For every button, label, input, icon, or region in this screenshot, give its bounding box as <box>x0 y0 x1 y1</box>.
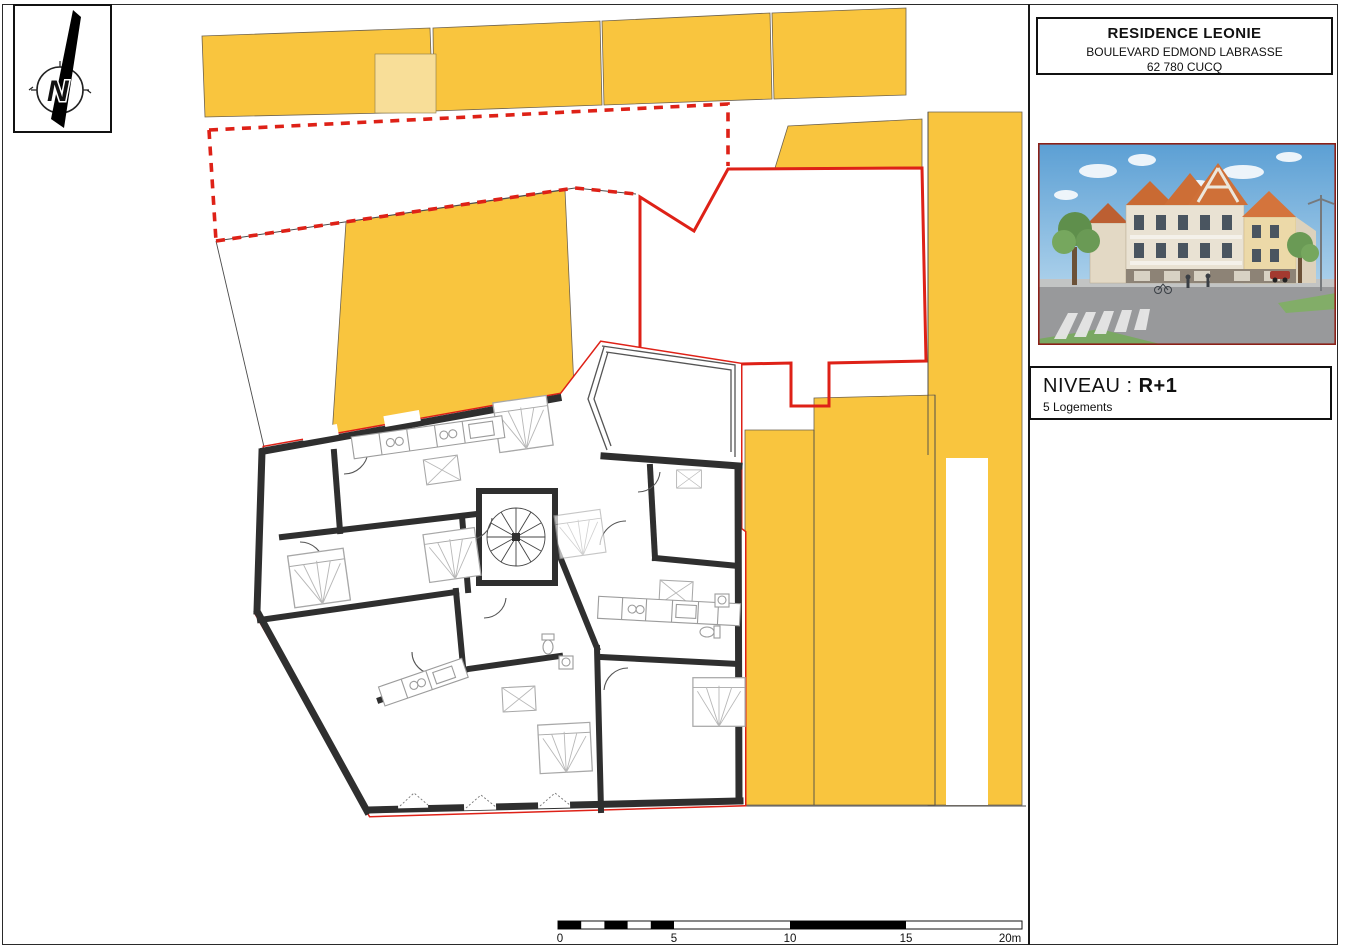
project-address: BOULEVARD EDMOND LABRASSE <box>1038 45 1331 59</box>
closet <box>423 455 460 485</box>
scale-label: 20m <box>999 933 1021 945</box>
panel-divider <box>1028 4 1030 945</box>
project-title: RESIDENCE LEONIE <box>1038 25 1331 42</box>
drawing-sheet: 0 5 10 15 20m N RESIDENCE LEONIE BOULEVA… <box>0 0 1345 948</box>
floor-plan <box>256 342 745 816</box>
parcel-top-c <box>602 13 772 105</box>
parcel-top-d <box>772 8 906 99</box>
bed <box>554 509 606 558</box>
compass-north-letter: N <box>47 75 70 108</box>
white-lane <box>946 458 988 805</box>
project-city: 62 780 CUCQ <box>1038 60 1331 74</box>
rendering-illustration <box>1038 143 1336 345</box>
parcel-southeast-mass <box>745 395 935 805</box>
toilet <box>542 634 554 654</box>
compass-needle-icon <box>51 10 81 128</box>
spiral-staircase <box>487 508 545 566</box>
level-info: NIVEAU :R+1 5 Logements <box>1029 366 1332 420</box>
bed <box>538 722 593 773</box>
scale-label: 10 <box>784 933 797 945</box>
bed <box>288 548 351 607</box>
toilet <box>700 626 720 638</box>
closet <box>502 686 536 712</box>
title-block: RESIDENCE LEONIE BOULEVARD EDMOND LABRAS… <box>1036 17 1333 75</box>
parcel-light-annex <box>375 54 436 113</box>
north-compass: N <box>15 6 110 131</box>
stair-core <box>479 491 555 583</box>
level-subtitle: 5 Logements <box>1043 400 1330 414</box>
north-compass-box: N <box>13 4 112 133</box>
scale-label: 0 <box>557 933 563 945</box>
sink <box>559 656 573 669</box>
scale-label: 5 <box>671 933 677 945</box>
scale-label: 15 <box>900 933 913 945</box>
bed <box>693 678 745 727</box>
scale-bar: 0 5 10 15 20m <box>557 921 1022 945</box>
bed <box>423 528 481 583</box>
level-value: R+1 <box>1139 375 1178 397</box>
shower <box>677 470 702 488</box>
project-rendering <box>1038 143 1336 345</box>
level-label: NIVEAU : <box>1043 375 1133 397</box>
sink <box>715 594 729 607</box>
parcel-top-b <box>433 21 602 111</box>
site-plan: 0 5 10 15 20m <box>0 0 1028 948</box>
parcel-band-northeast <box>775 119 922 168</box>
